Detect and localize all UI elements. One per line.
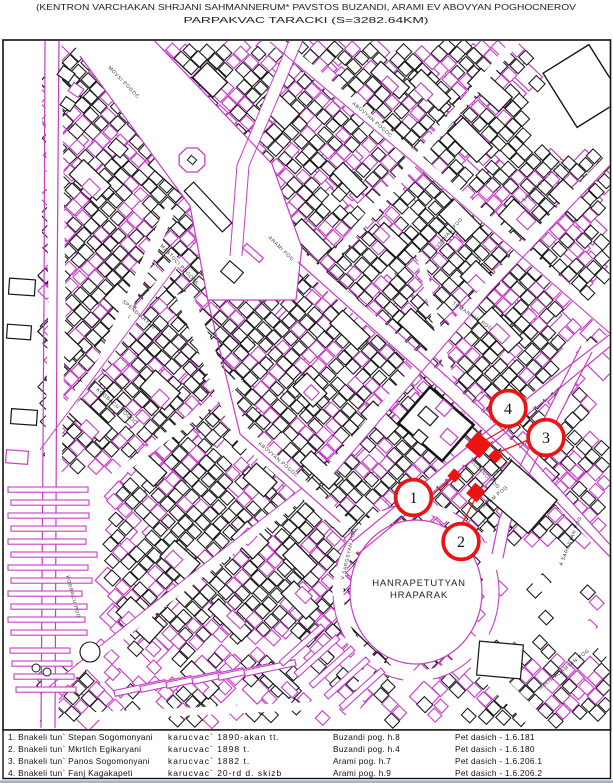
svg-text:3. Bnakeli tun` Panos Sogomony: 3. Bnakeli tun` Panos Sogomonyani <box>8 756 150 766</box>
svg-text:2. Bnakeli tun` Mkrtich Egikar: 2. Bnakeli tun` Mkrtich Egikaryani <box>8 744 141 754</box>
svg-text:Pet dasich - 1.6.181: Pet dasich - 1.6.181 <box>455 732 535 742</box>
svg-text:Pet dasich - 1.6.180: Pet dasich - 1.6.180 <box>455 744 535 754</box>
svg-text:HRAPARAK: HRAPARAK <box>390 590 448 601</box>
svg-text:Pet dasich - 1.6.206.1: Pet dasich - 1.6.206.1 <box>455 756 542 766</box>
svg-text:4. Bnakeli tun` Fanj Kagakapet: 4. Bnakeli tun` Fanj Kagakapeti <box>8 768 133 778</box>
svg-text:karucvac` 1890-akan tt.: karucvac` 1890-akan tt. <box>168 732 280 742</box>
svg-text:karucvac` 1882 t.: karucvac` 1882 t. <box>168 756 250 766</box>
svg-text:1: 1 <box>410 490 418 507</box>
svg-text:2: 2 <box>457 534 465 551</box>
svg-text:4: 4 <box>504 401 512 418</box>
svg-text:Pet dasich - 1.6.206.2: Pet dasich - 1.6.206.2 <box>455 768 542 778</box>
svg-text:Buzandi pog. h.8: Buzandi pog. h.8 <box>333 732 400 742</box>
svg-text:3: 3 <box>542 430 550 447</box>
svg-text:PARPAKVAC TARACKI (S=3282.64KM: PARPAKVAC TARACKI (S=3282.64KM) <box>184 16 430 25</box>
svg-text:Arami pog. h.7: Arami pog. h.7 <box>333 756 391 766</box>
svg-text:karucvac` 20-rd d. skizb: karucvac` 20-rd d. skizb <box>168 768 282 778</box>
svg-text:(KENTRON VARCHAKAN SHRJANI SAH: (KENTRON VARCHAKAN SHRJANI SAHMANNERUM* … <box>36 3 577 12</box>
svg-text:karucvac` 1898 t.: karucvac` 1898 t. <box>168 744 250 754</box>
svg-text:Buzandi pog. h.4: Buzandi pog. h.4 <box>333 744 400 754</box>
svg-text:HANRAPETUTYAN: HANRAPETUTYAN <box>372 578 466 589</box>
svg-text:1. Bnakeli tun` Stepan Sogomon: 1. Bnakeli tun` Stepan Sogomonyani <box>8 732 153 742</box>
svg-text:Arami pog. h.9: Arami pog. h.9 <box>333 768 391 778</box>
